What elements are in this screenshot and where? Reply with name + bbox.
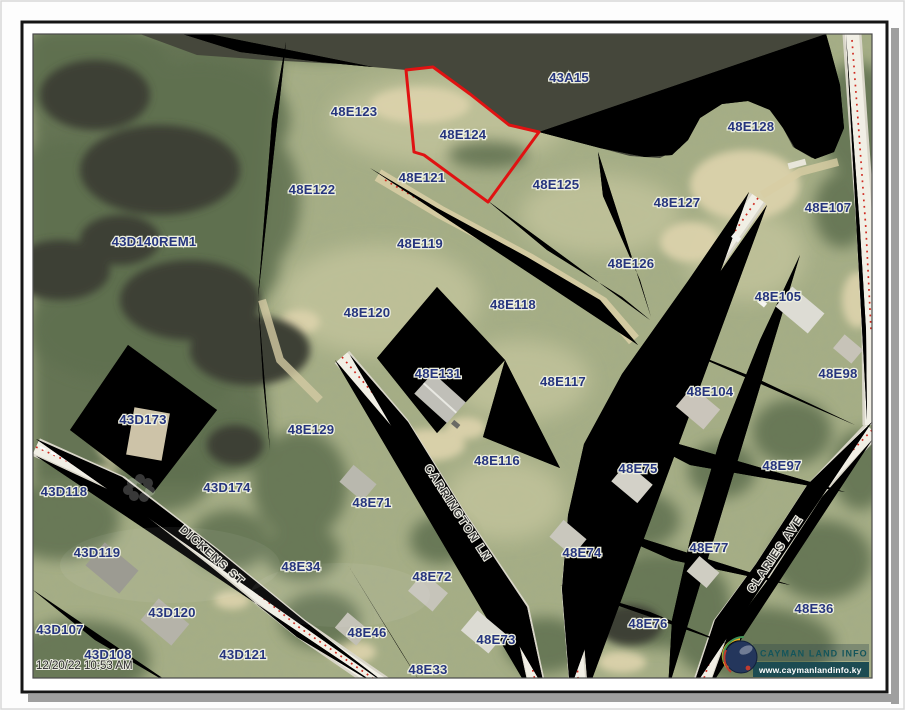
parcel-label-48E73: 48E73: [476, 632, 515, 647]
parcel-label-48E116: 48E116: [474, 453, 520, 468]
parcel-label-48E125: 48E125: [533, 177, 580, 192]
map-canvas[interactable]: 43A1548E12348E12448E12848E12248E12148E12…: [0, 0, 905, 710]
parcel-label-48E34: 48E34: [281, 559, 321, 574]
parcel-label-43D107: 43D107: [36, 622, 83, 637]
document-page: 43A1548E12348E12448E12848E12248E12148E12…: [0, 0, 905, 710]
parcel-label-48E118: 48E118: [490, 297, 536, 312]
logo-url: www.caymanlandinfo.ky: [758, 665, 862, 675]
parcel-label-48E104: 48E104: [687, 384, 734, 399]
parcel-label-48E127: 48E127: [654, 195, 701, 210]
logo-title: CAYMAN LAND INFO: [760, 649, 868, 659]
parcel-label-48E119: 48E119: [397, 236, 443, 251]
parcel-label-48E128: 48E128: [728, 119, 775, 134]
parcel-label-48E126: 48E126: [608, 256, 655, 271]
parcel-label-48E75: 48E75: [618, 461, 657, 476]
parcel-label-43D140REM1: 43D140REM1: [112, 234, 197, 249]
parcel-label-43D118: 43D118: [41, 484, 88, 499]
aerial-map[interactable]: 43A1548E12348E12448E12848E12248E12148E12…: [0, 16, 895, 700]
page-shadow-bottom: [28, 694, 899, 702]
parcel-label-43D174: 43D174: [203, 480, 251, 495]
parcel-label-48E76: 48E76: [628, 616, 667, 631]
parcel-label-48E36: 48E36: [794, 601, 833, 616]
parcel-label-48E122: 48E122: [289, 182, 336, 197]
parcel-label-48E131: 48E131: [415, 366, 462, 381]
parcel-label-48E121: 48E121: [399, 170, 446, 185]
parcel-label-48E98: 48E98: [818, 366, 857, 381]
parcel-label-48E107: 48E107: [805, 200, 852, 215]
parcel-label-48E124: 48E124: [440, 127, 487, 142]
parcel-label-48E71: 48E71: [352, 495, 391, 510]
parcel-label-48E77: 48E77: [689, 540, 728, 555]
timestamp: 12/20/22 10:53 AM: [36, 660, 133, 672]
parcel-label-48E74: 48E74: [562, 545, 602, 560]
parcel-label-43D121: 43D121: [219, 647, 266, 662]
parcel-label-48E33: 48E33: [408, 662, 447, 677]
parcel-label-48E105: 48E105: [755, 289, 802, 304]
parcel-label-48E72: 48E72: [412, 569, 451, 584]
parcel-label-43A15: 43A15: [549, 70, 589, 85]
parcel-label-48E123: 48E123: [331, 104, 378, 119]
parcel-label-48E117: 48E117: [540, 374, 586, 389]
parcel-label-43D173: 43D173: [119, 412, 166, 427]
parcel-label-43D119: 43D119: [74, 545, 121, 560]
parcel-label-48E120: 48E120: [344, 305, 391, 320]
parcel-label-43D120: 43D120: [148, 605, 195, 620]
page-shadow-right: [891, 28, 899, 704]
parcel-label-48E129: 48E129: [288, 422, 335, 437]
parcel-label-48E97: 48E97: [762, 458, 801, 473]
parcel-label-48E46: 48E46: [347, 625, 386, 640]
